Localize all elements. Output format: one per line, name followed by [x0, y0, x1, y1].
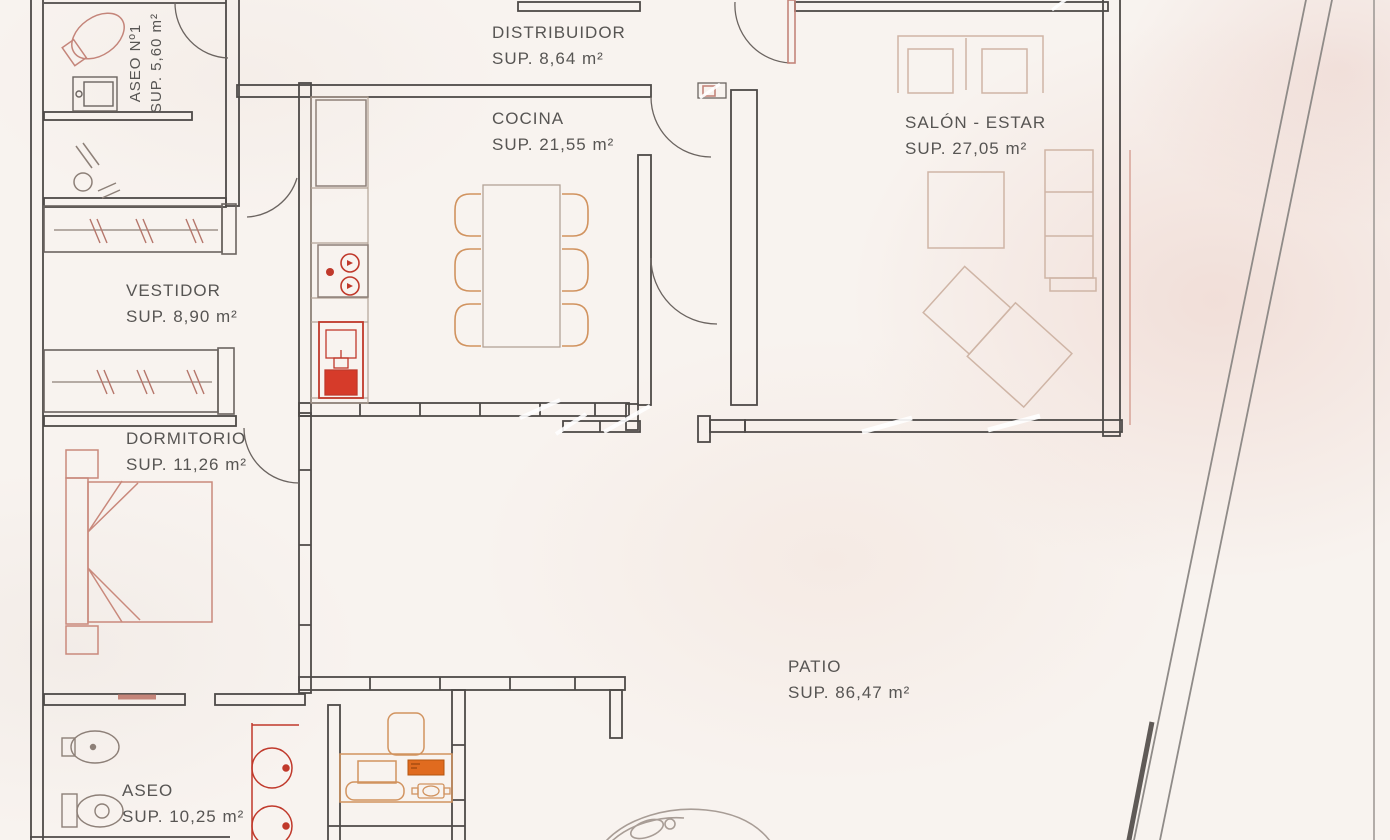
room-label-distribuidor: DISTRIBUIDOR SUP. 8,64 m² [492, 20, 626, 71]
room-label-aseo: ASEO SUP. 10,25 m² [122, 778, 244, 829]
wardrobe-2 [44, 348, 234, 414]
bathroom-sinks [252, 723, 299, 840]
desk-items [408, 760, 450, 798]
coffee-table [928, 172, 1004, 248]
room-area: SUP. 11,26 m² [126, 452, 247, 478]
washbasin-aseo1 [73, 77, 117, 111]
room-name: DORMITORIO [126, 426, 247, 452]
door-accents [118, 0, 1130, 697]
room-area: SUP. 21,55 m² [492, 132, 614, 158]
room-label-dormitorio: DORMITORIO SUP. 11,26 m² [126, 426, 247, 477]
room-name: DISTRIBUIDOR [492, 20, 626, 46]
wardrobe-1 [44, 204, 236, 254]
room-area: SUP. 86,47 m² [788, 680, 910, 706]
sofa-right [1045, 150, 1096, 291]
fridge [316, 100, 366, 186]
room-area: SUP. 8,90 m² [126, 304, 238, 330]
bidet [62, 731, 119, 763]
room-label-aseo1: ASEO Nº1 SUP. 5,60 m² [125, 0, 167, 145]
room-label-patio: PATIO SUP. 86,47 m² [788, 654, 910, 705]
floor-plan: DISTRIBUIDOR SUP. 8,64 m² COCINA SUP. 21… [0, 0, 1390, 840]
boundary-lines [1128, 0, 1374, 840]
office-chair [388, 713, 424, 755]
room-name: ASEO [122, 778, 244, 804]
car [606, 809, 770, 840]
bed [66, 450, 212, 654]
room-label-vestidor: VESTIDOR SUP. 8,90 m² [126, 278, 238, 329]
room-label-salon: SALÓN - ESTAR SUP. 27,05 m² [905, 110, 1046, 161]
shower [74, 143, 120, 198]
room-name: PATIO [788, 654, 910, 680]
room-area: SUP. 27,05 m² [905, 136, 1046, 162]
room-name: SALÓN - ESTAR [905, 110, 1046, 136]
stove [318, 245, 368, 297]
room-area: SUP. 10,25 m² [122, 804, 244, 830]
sofa-two-seat [898, 36, 1043, 93]
room-area: SUP. 8,64 m² [492, 46, 626, 72]
dining-table-set [455, 185, 588, 347]
room-name: COCINA [492, 106, 614, 132]
kitchen-sink [319, 322, 363, 398]
toilet-aseo1 [58, 4, 133, 72]
room-label-cocina: COCINA SUP. 21,55 m² [492, 106, 614, 157]
room-name: ASEO Nº1 [125, 0, 146, 145]
room-name: VESTIDOR [126, 278, 238, 304]
floorplan-svg [0, 0, 1390, 840]
toilet [62, 794, 123, 827]
room-area: SUP. 5,60 m² [146, 0, 167, 145]
